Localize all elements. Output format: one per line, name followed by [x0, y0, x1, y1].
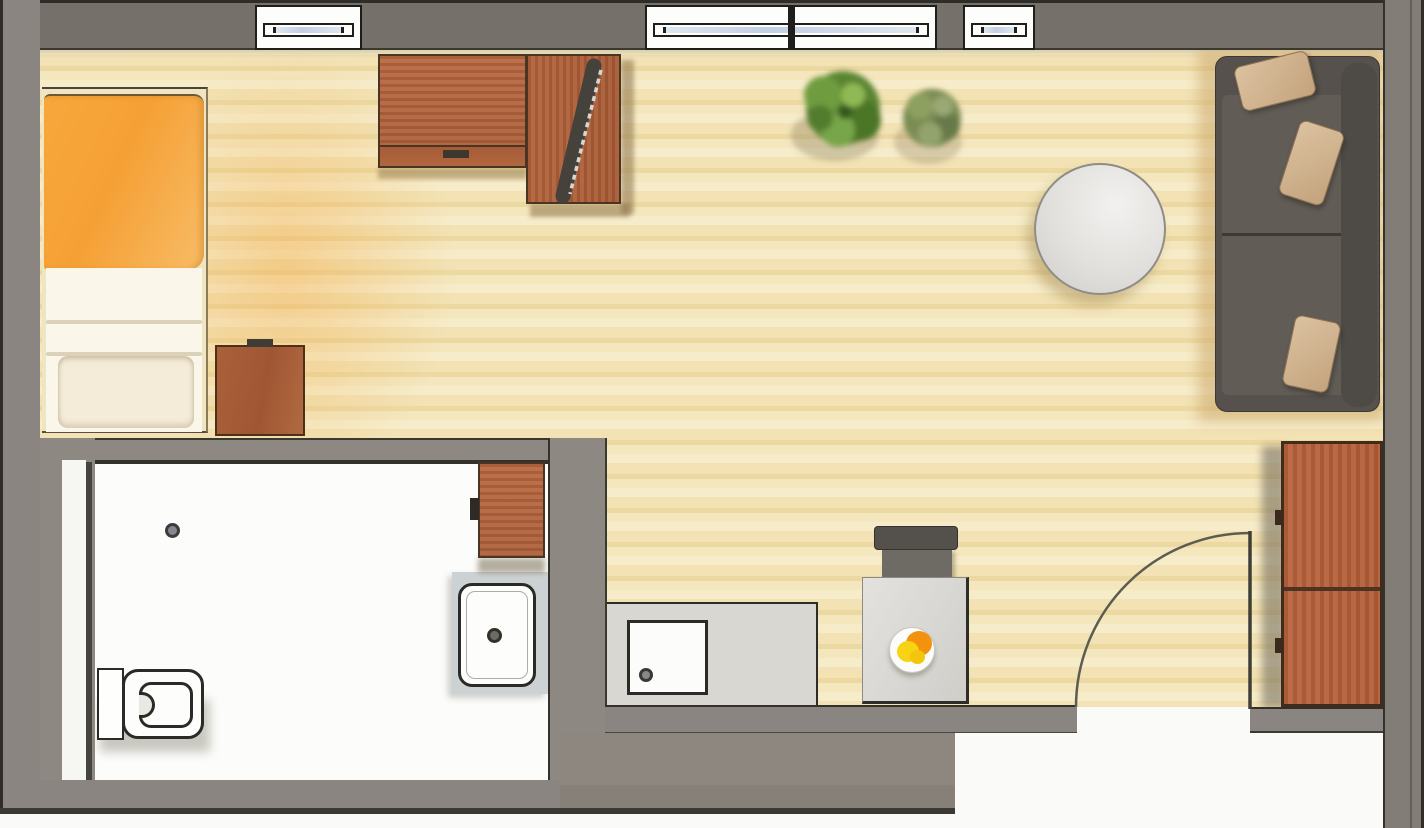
desk-shadow	[530, 204, 630, 217]
bath-cabinet-handle	[470, 498, 479, 520]
chair-backrest	[874, 526, 958, 550]
desk-right-section	[526, 54, 621, 204]
bathroom-partition-wall-top	[37, 438, 607, 462]
exterior-wall-bottom-left	[0, 780, 605, 810]
desk-handle	[443, 150, 469, 158]
desk-shadow	[378, 168, 527, 179]
nightstand	[215, 345, 305, 436]
exterior-wall-right-line	[1410, 0, 1412, 828]
bed-sheet	[46, 268, 202, 432]
bed	[42, 87, 208, 433]
window-mullion	[788, 5, 795, 50]
floor-plan	[0, 0, 1424, 828]
exterior-wall-bottom-kitchen	[605, 705, 1077, 733]
floor-drain	[165, 523, 180, 538]
round-coffee-table	[1034, 163, 1166, 295]
bed-blanket	[44, 94, 204, 270]
wardrobe-divider	[1284, 587, 1380, 591]
sofa-cushion-seam	[1222, 233, 1348, 236]
bathroom-door-recess	[62, 460, 86, 780]
window-glazing	[971, 23, 1027, 37]
bath-cabinet	[478, 462, 545, 558]
exterior-wall-right-of-door	[1250, 707, 1383, 733]
exterior-wall-left	[0, 0, 40, 813]
toilet-bowl	[122, 669, 204, 739]
bathroom-door-panel	[86, 462, 92, 780]
window-center	[645, 5, 937, 50]
window-left	[255, 5, 362, 50]
toilet-cistern	[97, 668, 124, 740]
kitchen-sink-unit	[627, 620, 708, 695]
desk-shadow	[621, 60, 634, 214]
bath-cabinet-shadow	[478, 558, 545, 573]
window-right	[963, 5, 1035, 50]
desk-left-section	[378, 54, 527, 146]
exterior-wall-right	[1383, 0, 1424, 828]
kitchen-sink-knob	[639, 668, 653, 682]
nightstand-handle	[247, 339, 273, 347]
window-glazing	[263, 23, 354, 37]
bed-pillow	[58, 356, 194, 428]
food-item	[910, 650, 925, 664]
wardrobe-knob	[1275, 638, 1283, 653]
sheet-fold	[46, 320, 202, 324]
exterior-wall-protrusion	[560, 733, 955, 808]
chair-seat	[882, 549, 952, 580]
exterior-wall-edge-line	[0, 808, 955, 814]
sofa-backrest	[1341, 63, 1377, 407]
wardrobe	[1281, 441, 1383, 707]
faucet-dot	[487, 628, 502, 643]
wardrobe-knob	[1275, 510, 1283, 525]
